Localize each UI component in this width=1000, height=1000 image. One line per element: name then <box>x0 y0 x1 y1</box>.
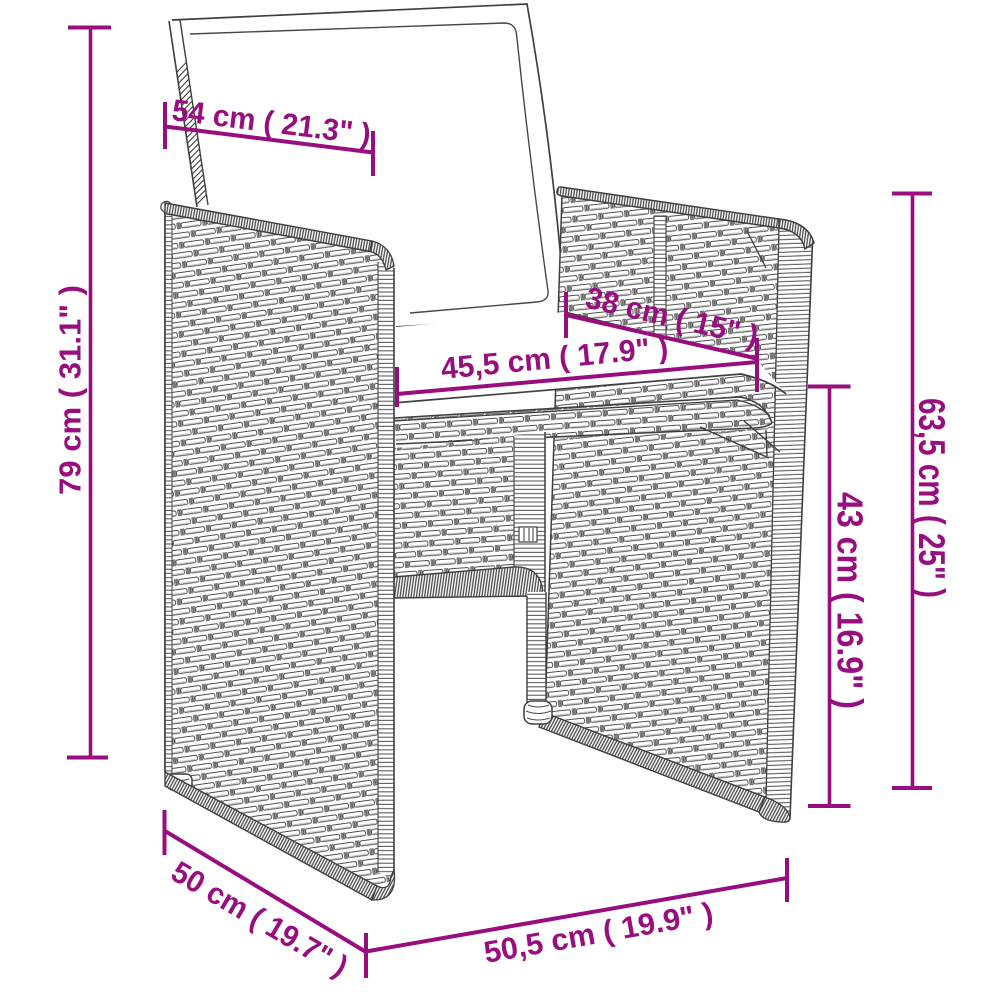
svg-text:43 cm ( 16.9" ): 43 cm ( 16.9" ) <box>830 492 871 709</box>
svg-text:63,5 cm ( 25" ): 63,5 cm ( 25" ) <box>911 398 952 598</box>
svg-text:79 cm ( 31.1" ): 79 cm ( 31.1" ) <box>54 285 88 495</box>
